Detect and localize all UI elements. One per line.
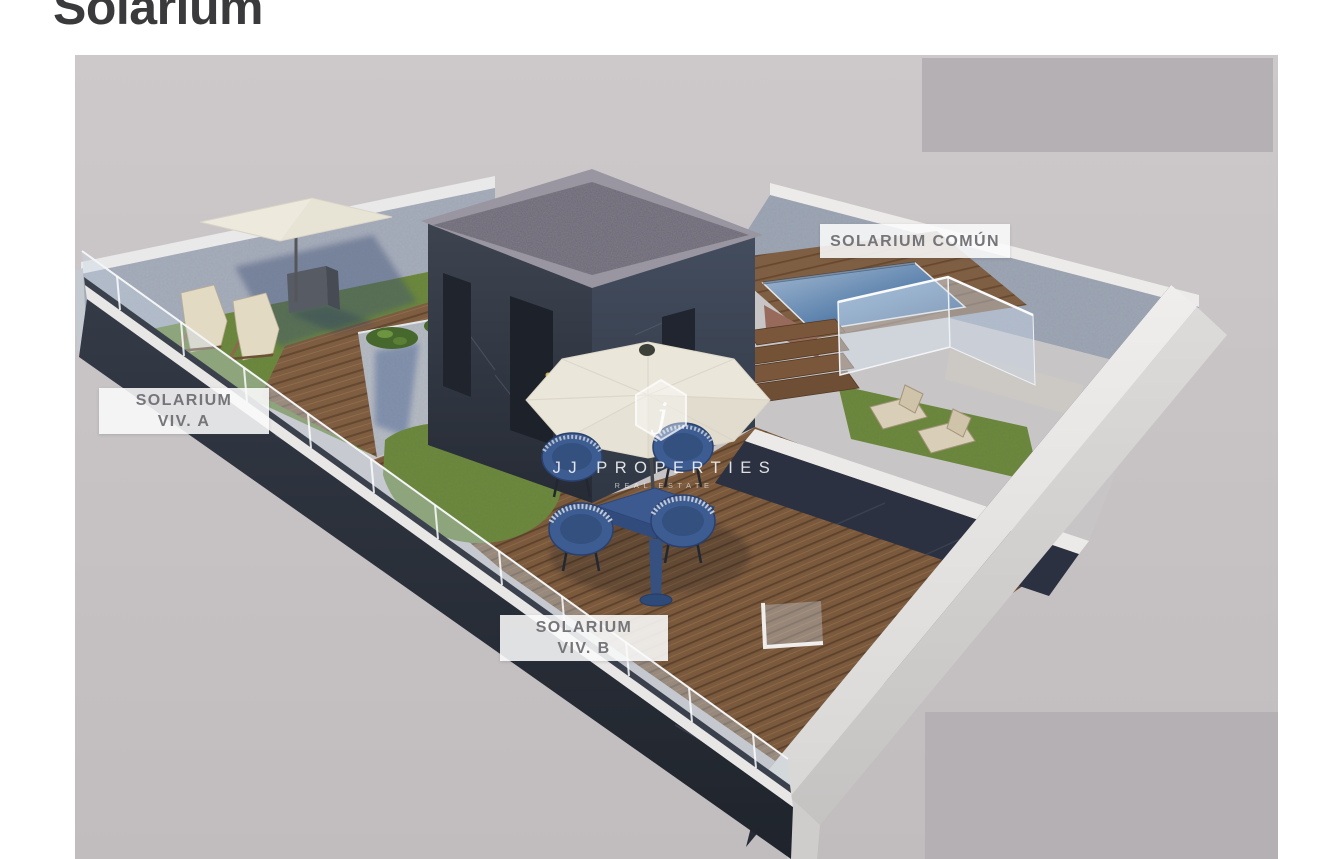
brochure-page: Solarium <box>0 0 1320 859</box>
brand-tagline: REAL ESTATE <box>615 481 714 490</box>
label-text: VIV. A <box>158 411 211 432</box>
render-canvas: j JJ PROPERTIES REAL ESTATE SOLARIUM COM… <box>75 55 1278 859</box>
label-solarium-comun: SOLARIUM COMÚN <box>820 224 1010 258</box>
label-solarium-viv-b: SOLARIUM VIV. B <box>500 615 668 661</box>
label-solarium-viv-a: SOLARIUM VIV. A <box>99 388 269 434</box>
brand-name: JJ PROPERTIES <box>553 459 778 477</box>
masked-panel-bottom-right <box>925 712 1278 859</box>
door <box>443 273 471 397</box>
page-title: Solarium <box>53 0 263 36</box>
glass-corner-frame <box>763 601 823 647</box>
label-text: SOLARIUM <box>136 390 233 411</box>
solarium-3d-render: j JJ PROPERTIES REAL ESTATE <box>75 55 1278 859</box>
masked-panel-top-right <box>922 58 1273 152</box>
label-text: VIV. B <box>557 638 610 659</box>
umbrella-finial <box>639 344 655 356</box>
label-text: SOLARIUM COMÚN <box>830 231 1000 252</box>
label-text: SOLARIUM <box>536 617 633 638</box>
